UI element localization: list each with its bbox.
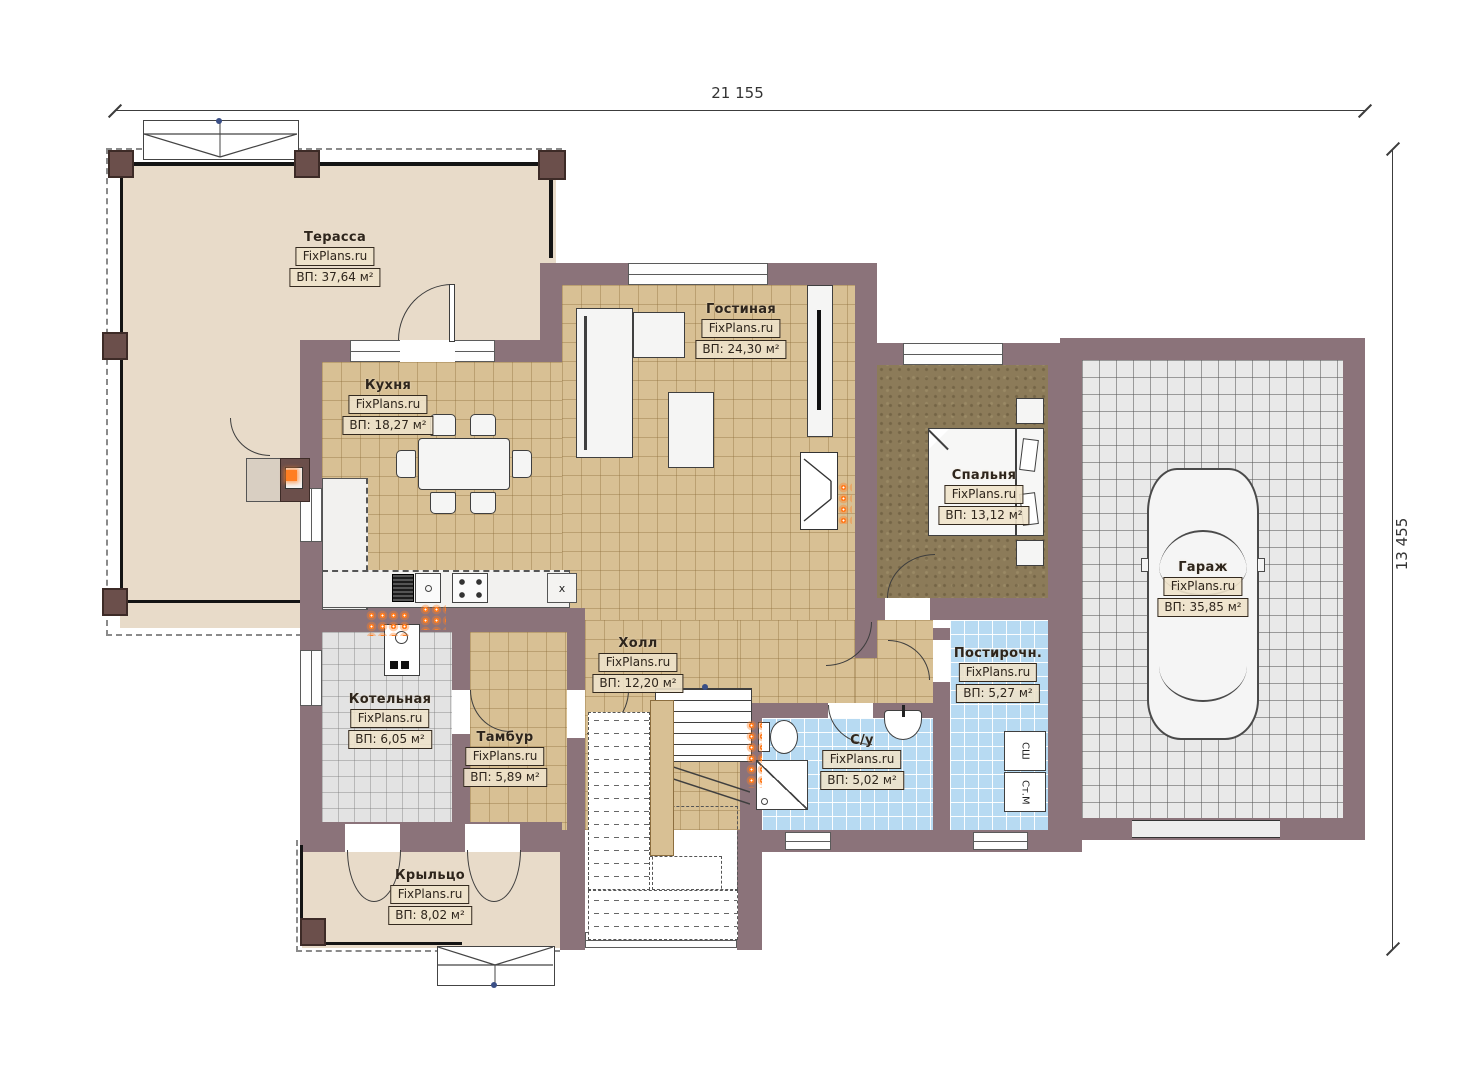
wall: [560, 852, 585, 950]
boiler-port: [401, 661, 409, 669]
wall: [855, 285, 877, 620]
stair-tread-lines: [438, 947, 553, 984]
hood-icon: x: [547, 573, 577, 603]
watermark: FixPlans.ru: [1164, 577, 1243, 596]
floor-plan: x: [0, 0, 1473, 1080]
dimension-height-label: 13 455: [1393, 494, 1411, 594]
terrace-exterior-stair: [143, 120, 299, 160]
column: [538, 150, 566, 180]
sink-drain: [425, 585, 432, 592]
dimension-tick: [1386, 142, 1400, 156]
room-label-garage: Гараж FixPlans.ru ВП: 35,85 м²: [1157, 560, 1248, 617]
column: [102, 588, 128, 616]
room-label-kitchen: Кухня FixPlans.ru ВП: 18,27 м²: [342, 378, 433, 435]
sink-icon: [415, 573, 441, 603]
door-opening: [452, 690, 470, 734]
radiator: [746, 720, 762, 788]
washing-machine: Ст.М: [1004, 772, 1046, 812]
room-area: ВП: 5,89 м²: [463, 768, 547, 787]
radiator: [366, 610, 410, 636]
car-mirror: [1257, 558, 1265, 572]
room-name: Гостиная: [706, 302, 776, 317]
dryer: СШ: [1004, 731, 1046, 771]
room-label-porch: Крыльцо FixPlans.ru ВП: 8,02 м²: [388, 868, 472, 925]
room-area: ВП: 24,30 м²: [695, 340, 786, 359]
shower-drain: [761, 798, 768, 805]
room-label-terrace: Терасса FixPlans.ru ВП: 37,64 м²: [289, 230, 380, 287]
window: [300, 650, 322, 706]
staircase-stringer-wall: [650, 700, 674, 856]
door-opening: [567, 690, 585, 738]
room-label-boiler: Котельная FixPlans.ru ВП: 6,05 м²: [348, 692, 432, 749]
stair-tread-lines: [144, 121, 297, 158]
car-mirror: [1141, 558, 1149, 572]
terrace-edge-left: [120, 162, 123, 604]
wall: [933, 718, 950, 830]
room-area: ВП: 12,20 м²: [592, 674, 683, 693]
bbq-shelf: [246, 458, 282, 502]
door-opening: [933, 640, 950, 682]
radiator: [838, 482, 852, 524]
room-label-vestibule: Тамбур FixPlans.ru ВП: 5,89 м²: [463, 730, 547, 787]
pillow: [1019, 438, 1039, 472]
hood-mark: x: [559, 582, 566, 595]
watermark: FixPlans.ru: [351, 709, 430, 728]
room-label-bedroom: Спальня FixPlans.ru ВП: 13,12 м²: [938, 468, 1029, 525]
wall: [1343, 338, 1365, 840]
watermark: FixPlans.ru: [959, 663, 1038, 682]
hob-icon: [452, 573, 488, 603]
kitchen-counter: [322, 570, 570, 608]
terrace-edge-bottom: [120, 600, 306, 603]
watermark: FixPlans.ru: [466, 747, 545, 766]
dimension-tick: [108, 104, 122, 118]
sofa-back-line: [584, 316, 587, 450]
chair: [470, 414, 496, 436]
room-name: Гараж: [1178, 560, 1228, 575]
watermark: FixPlans.ru: [702, 319, 781, 338]
watermark: FixPlans.ru: [599, 653, 678, 672]
room-label-hall: Холл FixPlans.ru ВП: 12,20 м²: [592, 636, 683, 693]
wall: [300, 340, 322, 852]
wall: [540, 263, 562, 362]
watermark: FixPlans.ru: [349, 395, 428, 414]
column: [294, 150, 320, 178]
stair-direction-dot: [216, 118, 222, 124]
dimension-tick: [1386, 942, 1400, 956]
dining-table: [418, 438, 510, 490]
bbq-coals: [286, 470, 297, 481]
room-name: Спальня: [952, 468, 1016, 483]
room-name: Крыльцо: [395, 868, 465, 883]
room-area: ВП: 18,27 м²: [342, 416, 433, 435]
dimension-tick: [1358, 104, 1372, 118]
door-leaf: [449, 284, 455, 342]
room-area: ВП: 5,27 м²: [956, 684, 1040, 703]
room-name: Тамбур: [477, 730, 534, 745]
room-area: ВП: 6,05 м²: [348, 730, 432, 749]
column: [108, 150, 134, 178]
porch-exterior-stair: [437, 946, 555, 986]
fireplace-hearth-lines: [801, 453, 835, 527]
toilet-bowl: [770, 720, 798, 754]
wall: [1060, 338, 1365, 360]
door-opening: [400, 340, 455, 362]
room-area: ВП: 8,02 м²: [388, 906, 472, 925]
garage-door: [1132, 820, 1280, 838]
column: [102, 332, 128, 360]
room-name: С/у: [850, 733, 874, 748]
floor-hall-opening: [855, 658, 877, 703]
fireplace: [800, 452, 838, 530]
sofa-chaise: [633, 312, 685, 358]
watermark: FixPlans.ru: [391, 885, 470, 904]
wall: [322, 608, 585, 632]
chair: [396, 450, 416, 478]
stair-direction-dot: [491, 982, 497, 988]
stair-direction-dot: [702, 684, 708, 690]
shower-tray: [756, 760, 808, 810]
wall: [1048, 343, 1082, 840]
room-area: ВП: 35,85 м²: [1157, 598, 1248, 617]
wall: [737, 852, 762, 950]
room-label-laundry: Постирочн. FixPlans.ru ВП: 5,27 м²: [954, 646, 1042, 703]
dryer-label: СШ: [1005, 732, 1045, 770]
watermark: FixPlans.ru: [945, 485, 1024, 504]
chair: [512, 450, 532, 478]
window: [973, 832, 1028, 850]
chair: [430, 492, 456, 514]
sink-tap: [902, 705, 905, 717]
radiator: [420, 604, 446, 630]
door-opening: [885, 598, 930, 620]
room-area: ВП: 37,64 м²: [289, 268, 380, 287]
chair: [430, 414, 456, 436]
wall: [567, 632, 585, 852]
room-label-bathroom: С/у FixPlans.ru ВП: 5,02 м²: [820, 733, 904, 790]
boiler-port: [390, 661, 398, 669]
room-name: Постирочн.: [954, 646, 1042, 661]
staircase-landing-dashed: [588, 890, 738, 940]
room-label-living: Гостиная FixPlans.ru ВП: 24,30 м²: [695, 302, 786, 359]
staircase-lower-flight-dashed: [588, 712, 650, 890]
room-name: Холл: [618, 636, 657, 651]
chair: [470, 492, 496, 514]
nightstand: [1016, 540, 1044, 566]
window: [785, 832, 831, 850]
window: [903, 343, 1003, 365]
room-area: ВП: 5,02 м²: [820, 771, 904, 790]
coffee-table: [668, 392, 714, 468]
room-area: ВП: 13,12 м²: [938, 506, 1029, 525]
window: [628, 263, 768, 285]
nightstand: [1016, 398, 1044, 424]
washer-label: Ст.М: [1005, 773, 1045, 811]
oven-icon: [392, 574, 414, 602]
column: [300, 918, 326, 946]
watermark: FixPlans.ru: [296, 247, 375, 266]
dimension-width-label: 21 155: [665, 84, 810, 102]
terrace-edge-top: [122, 162, 552, 166]
room-name: Кухня: [365, 378, 411, 393]
room-name: Котельная: [349, 692, 431, 707]
room-name: Терасса: [304, 230, 366, 245]
watermark: FixPlans.ru: [823, 750, 902, 769]
dimension-line-horizontal: [115, 110, 1365, 111]
tv-icon: [817, 310, 821, 410]
